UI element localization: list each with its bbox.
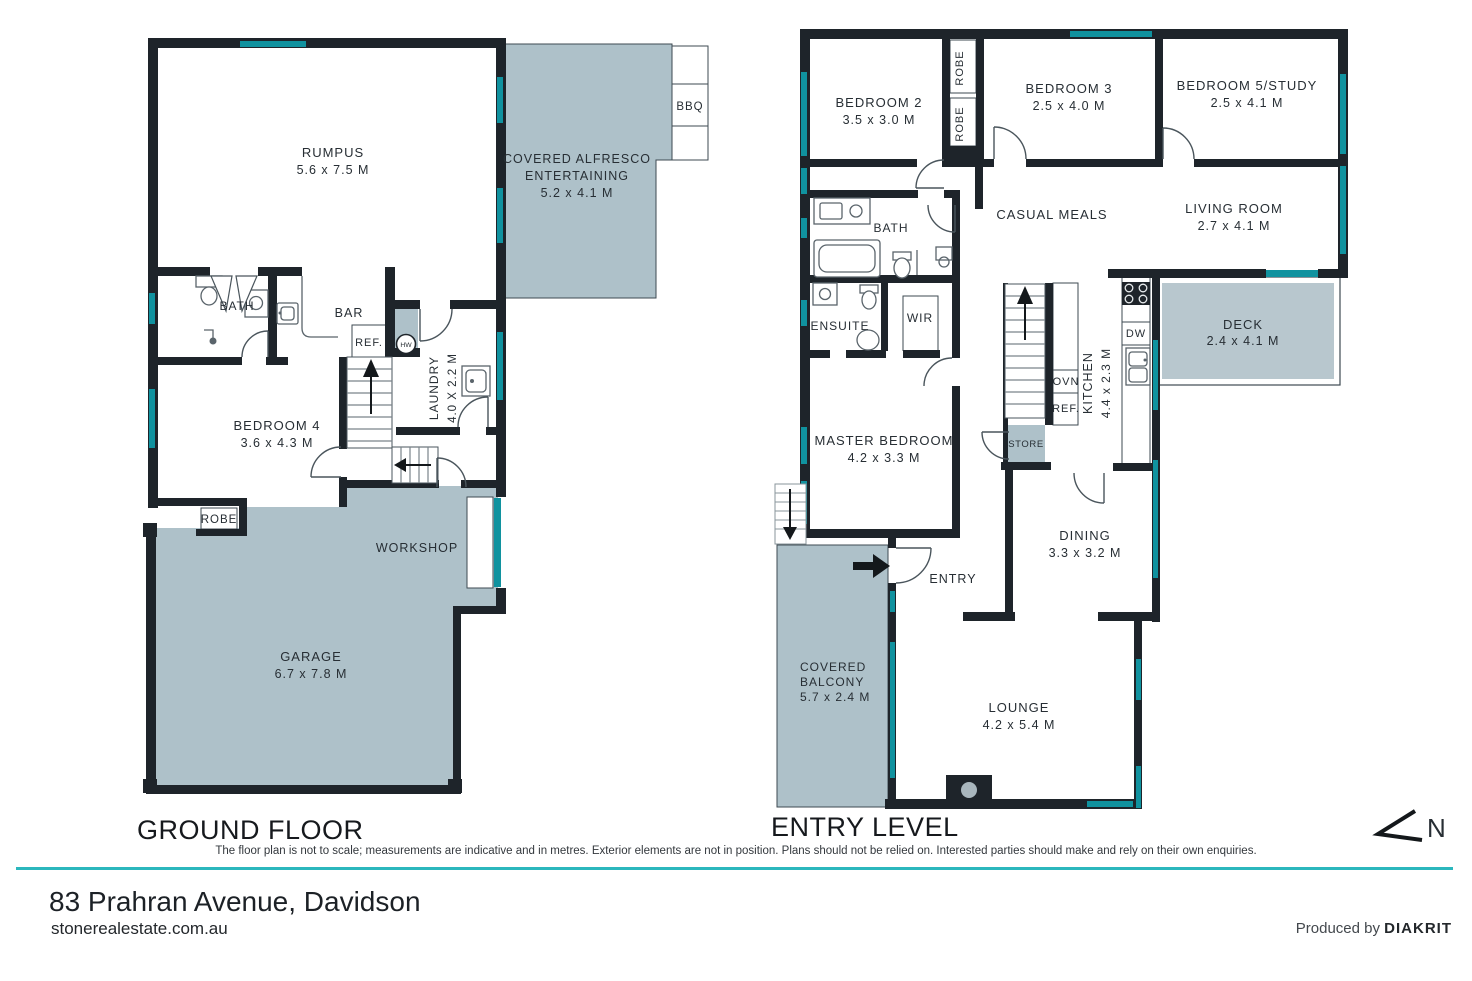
- bar-label: BAR: [335, 306, 364, 320]
- ensuite-toilet-2: [857, 330, 879, 350]
- alfresco-label-1: COVERED ALFRESCO: [503, 152, 651, 166]
- bedroom2-label: BEDROOM 2: [835, 95, 922, 110]
- ground-floor-plan: RUMPUS 5.6 x 7.5 M COVERED ALFRESCO ENTE…: [140, 28, 724, 828]
- property-address: 83 Prahran Avenue, Davidson: [49, 886, 421, 918]
- corner-basin: [936, 247, 952, 260]
- deck-label: DECK: [1223, 317, 1263, 332]
- laundry-label: LAUNDRY: [427, 356, 441, 420]
- disclaimer-text: The floor plan is not to scale; measurem…: [0, 845, 1472, 857]
- bedroom5-dims: 2.5 x 4.1 M: [1211, 96, 1284, 110]
- balcony-dims: 5.7 x 2.4 M: [800, 690, 870, 704]
- casual-meals-label: CASUAL MEALS: [996, 207, 1107, 222]
- garage-dims: 6.7 x 7.8 M: [275, 667, 348, 681]
- bedroom4-dims: 3.6 x 4.3 M: [241, 436, 314, 450]
- robe-label: ROBE: [201, 514, 238, 526]
- alfresco-label-2: ENTERTAINING: [525, 169, 629, 183]
- lounge-label: LOUNGE: [989, 700, 1050, 715]
- rumpus-label: RUMPUS: [302, 145, 364, 160]
- master-label: MASTER BEDROOM: [815, 433, 954, 448]
- dw-label: DW: [1126, 328, 1146, 340]
- robe-b-label: ROBE: [954, 106, 966, 141]
- wir-label: WIR: [907, 311, 933, 325]
- deck-dims: 2.4 x 4.1 M: [1207, 334, 1280, 348]
- bedroom3-label: BEDROOM 3: [1025, 81, 1112, 96]
- ref-label: REF.: [355, 337, 383, 349]
- produced-by-prefix: Produced by: [1296, 920, 1380, 937]
- rumpus-dims: 5.6 x 7.5 M: [297, 163, 370, 177]
- dining-dims: 3.3 x 3.2 M: [1049, 546, 1122, 560]
- lounge-dims: 4.2 x 5.4 M: [983, 718, 1056, 732]
- bath-label: BATH: [873, 221, 908, 235]
- ovn-label: OVN: [1053, 376, 1080, 388]
- bedroom4-label: BEDROOM 4: [233, 418, 320, 433]
- hw-label: HW: [400, 342, 412, 349]
- entry-label: ENTRY: [929, 572, 976, 586]
- ensuite-vanity: [813, 283, 837, 305]
- entry-level-plan: BEDROOM 2 3.5 x 3.0 M ROBE ROBE BEDROOM …: [770, 24, 1360, 824]
- teal-divider-rule: [16, 867, 1453, 870]
- ref-label: REF.: [1052, 403, 1080, 415]
- agency-website: stonerealestate.com.au: [51, 919, 228, 939]
- store-label: STORE: [1008, 439, 1044, 450]
- bath-label: BATH: [219, 299, 254, 313]
- laundry-dims: 4.0 X 2.2 M: [447, 353, 459, 423]
- garage-label: GARAGE: [280, 649, 342, 664]
- ground-floor-title: GROUND FLOOR: [137, 815, 364, 846]
- floorplan-page: RUMPUS 5.6 x 7.5 M COVERED ALFRESCO ENTE…: [0, 0, 1472, 981]
- bedroom3-dims: 2.5 x 4.0 M: [1033, 99, 1106, 113]
- bedroom5-label: BEDROOM 5/STUDY: [1177, 78, 1318, 93]
- balcony-label-1: COVERED: [800, 660, 866, 674]
- balcony-label-2: BALCONY: [800, 675, 864, 689]
- ensuite-label: ENSUITE: [810, 319, 869, 333]
- dining-label: DINING: [1059, 528, 1111, 543]
- workshop-door-inset: [467, 497, 493, 588]
- alfresco-dims: 5.2 x 4.1 M: [541, 186, 614, 200]
- bbq-label: BBQ: [676, 101, 703, 113]
- producer-brand: DIAKRIT: [1384, 920, 1452, 937]
- produced-by: Produced by DIAKRIT: [1296, 920, 1452, 937]
- master-dims: 4.2 x 3.3 M: [848, 451, 921, 465]
- workshop-label: WORKSHOP: [376, 541, 458, 555]
- north-label: N: [1427, 813, 1447, 843]
- bedroom2-dims: 3.5 x 3.0 M: [843, 113, 916, 127]
- living-dims: 2.7 x 4.1 M: [1198, 219, 1271, 233]
- entry-level-title: ENTRY LEVEL: [771, 812, 959, 843]
- living-label: LIVING ROOM: [1185, 201, 1283, 216]
- kitchen-dims: 4.4 x 2.3 M: [1099, 348, 1113, 418]
- kitchen-label: KITCHEN: [1081, 352, 1095, 414]
- robe-a-label: ROBE: [954, 50, 966, 85]
- entry-arrow: [853, 562, 873, 570]
